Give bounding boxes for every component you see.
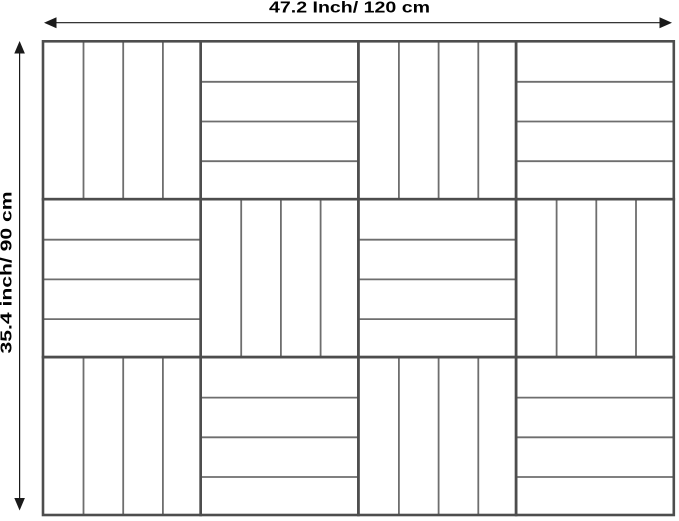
svg-text:47.2 Inch/ 120 cm: 47.2 Inch/ 120 cm xyxy=(269,0,430,17)
svg-text:35.4 inch/ 90 cm: 35.4 inch/ 90 cm xyxy=(0,192,16,354)
